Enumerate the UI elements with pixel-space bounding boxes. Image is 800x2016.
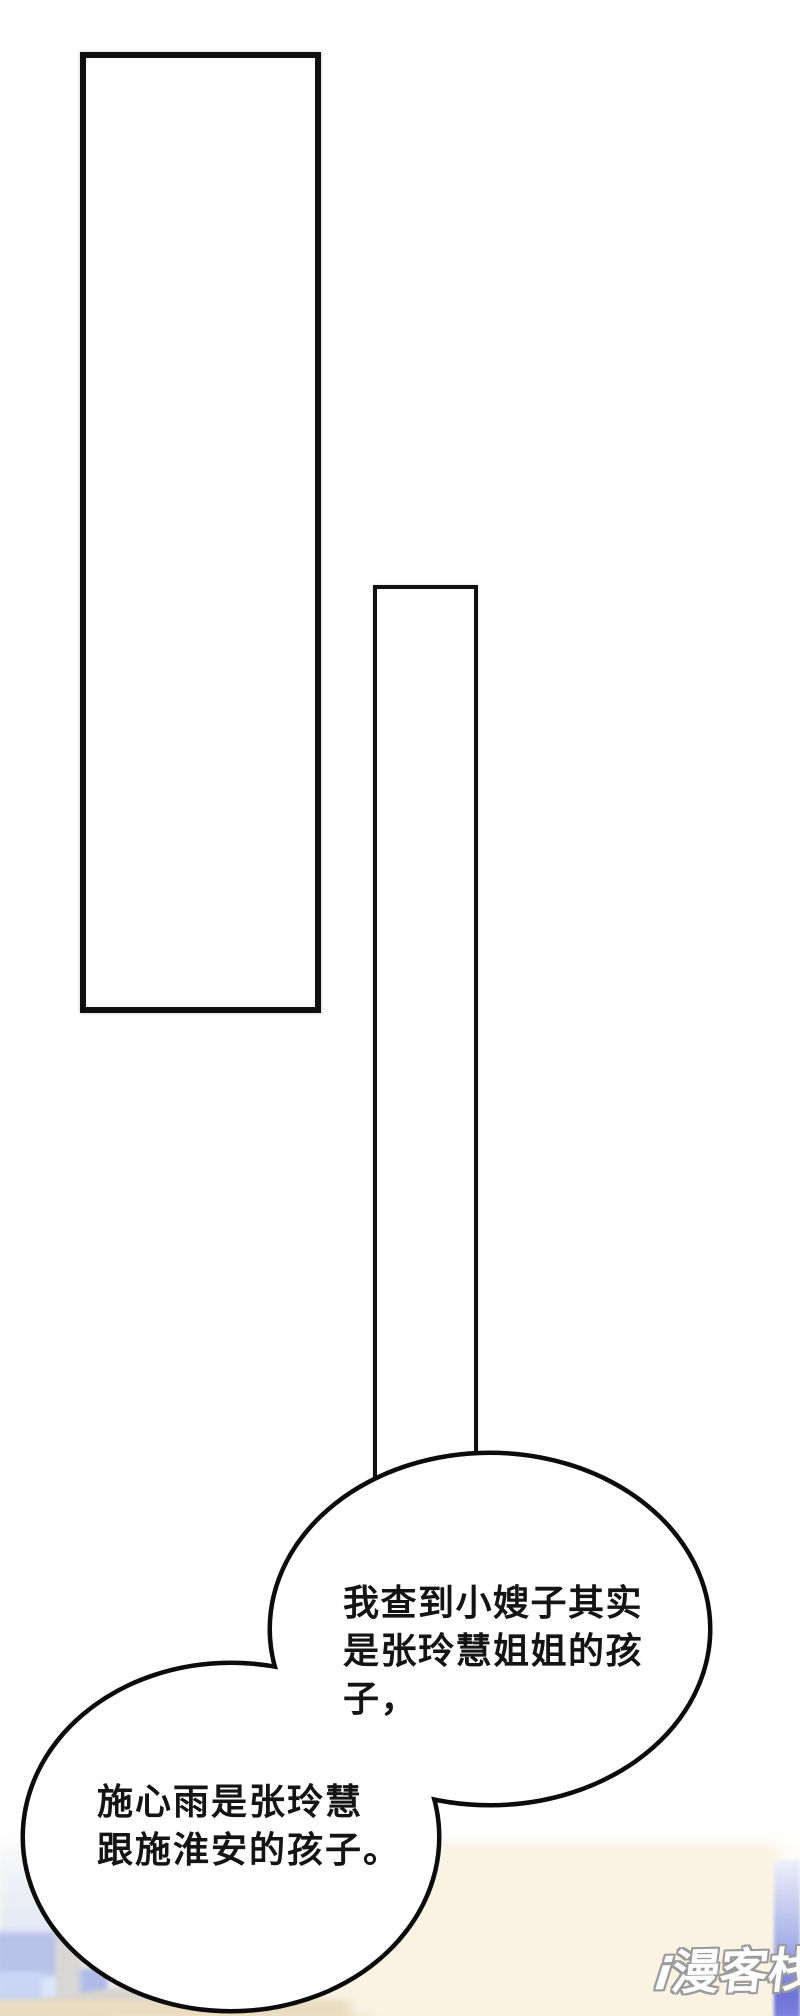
dialogue-line: 跟施淮安的孩子。 — [97, 1827, 401, 1875]
dialogue-line: 子， — [343, 1676, 643, 1724]
mankezhan-watermark-logo: i 漫客栈 — [653, 1947, 800, 1998]
panel-frame-narrow-center — [373, 585, 478, 1520]
photo-blob-beige-floor — [0, 2000, 374, 2016]
dialogue-line: 是张玲慧姐姐的孩 — [343, 1628, 643, 1676]
dialogue-line: 我查到小嫂子其实 — [343, 1580, 643, 1628]
watermark-logo-text: 漫客栈 — [669, 1947, 800, 1998]
dialogue-line: 施心雨是张玲慧 — [97, 1779, 401, 1827]
dialogue-lower-block: 施心雨是张玲慧 跟施淮安的孩子。 — [97, 1779, 401, 1875]
dialogue-upper-block: 我查到小嫂子其实 是张玲慧姐姐的孩 子， — [343, 1580, 643, 1724]
panel-frame-tall-left — [80, 52, 321, 1013]
comic-page: 我查到小嫂子其实 是张玲慧姐姐的孩 子， 施心雨是张玲慧 跟施淮安的孩子。 i … — [0, 0, 800, 2016]
photo-blob-sky-blue — [0, 1932, 60, 1976]
